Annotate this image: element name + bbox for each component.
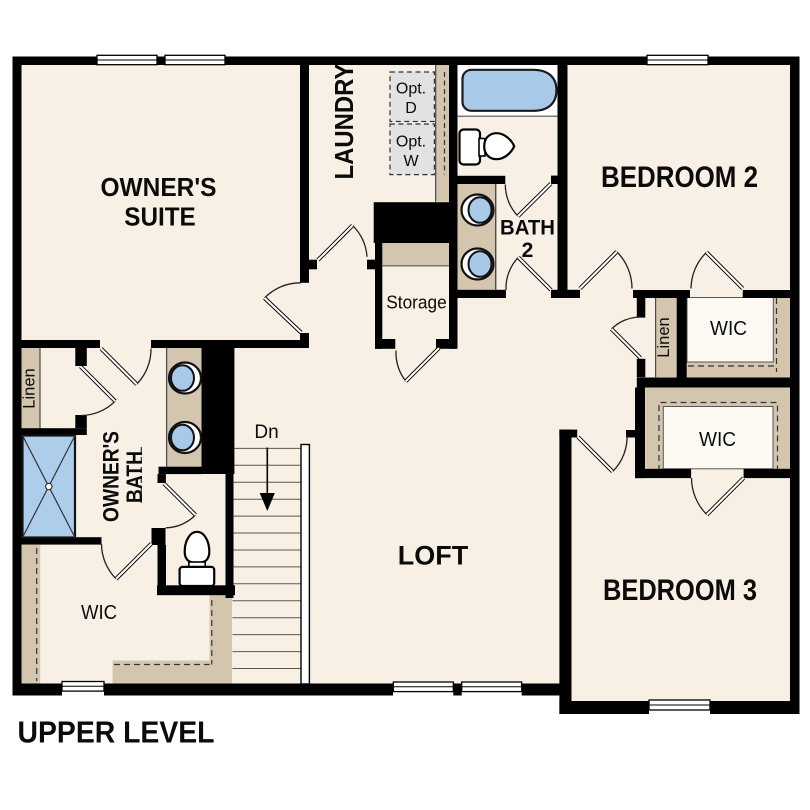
svg-text:Opt.: Opt. (396, 81, 426, 98)
svg-text:LOFT: LOFT (398, 541, 469, 571)
svg-text:UPPER LEVEL: UPPER LEVEL (18, 715, 215, 750)
svg-text:OWNER'S: OWNER'S (99, 431, 124, 522)
svg-text:BATH: BATH (122, 451, 147, 503)
svg-text:Storage: Storage (386, 291, 447, 312)
svg-text:W: W (403, 153, 419, 170)
svg-text:Dn: Dn (254, 422, 278, 443)
svg-text:LAUNDRY: LAUNDRY (331, 64, 359, 180)
svg-text:WIC: WIC (699, 429, 736, 451)
svg-text:BEDROOM 2: BEDROOM 2 (601, 161, 758, 194)
svg-text:WIC: WIC (710, 318, 747, 340)
svg-text:BATH: BATH (500, 217, 555, 240)
svg-text:Opt.: Opt. (396, 134, 426, 151)
svg-text:Linen: Linen (21, 368, 39, 408)
svg-text:SUITE: SUITE (124, 202, 196, 232)
svg-text:BEDROOM 3: BEDROOM 3 (603, 574, 757, 607)
svg-text:WIC: WIC (81, 602, 117, 624)
svg-text:D: D (405, 100, 417, 117)
svg-text:2: 2 (522, 239, 534, 262)
svg-text:Linen: Linen (655, 317, 673, 357)
svg-text:OWNER'S: OWNER'S (101, 172, 217, 202)
